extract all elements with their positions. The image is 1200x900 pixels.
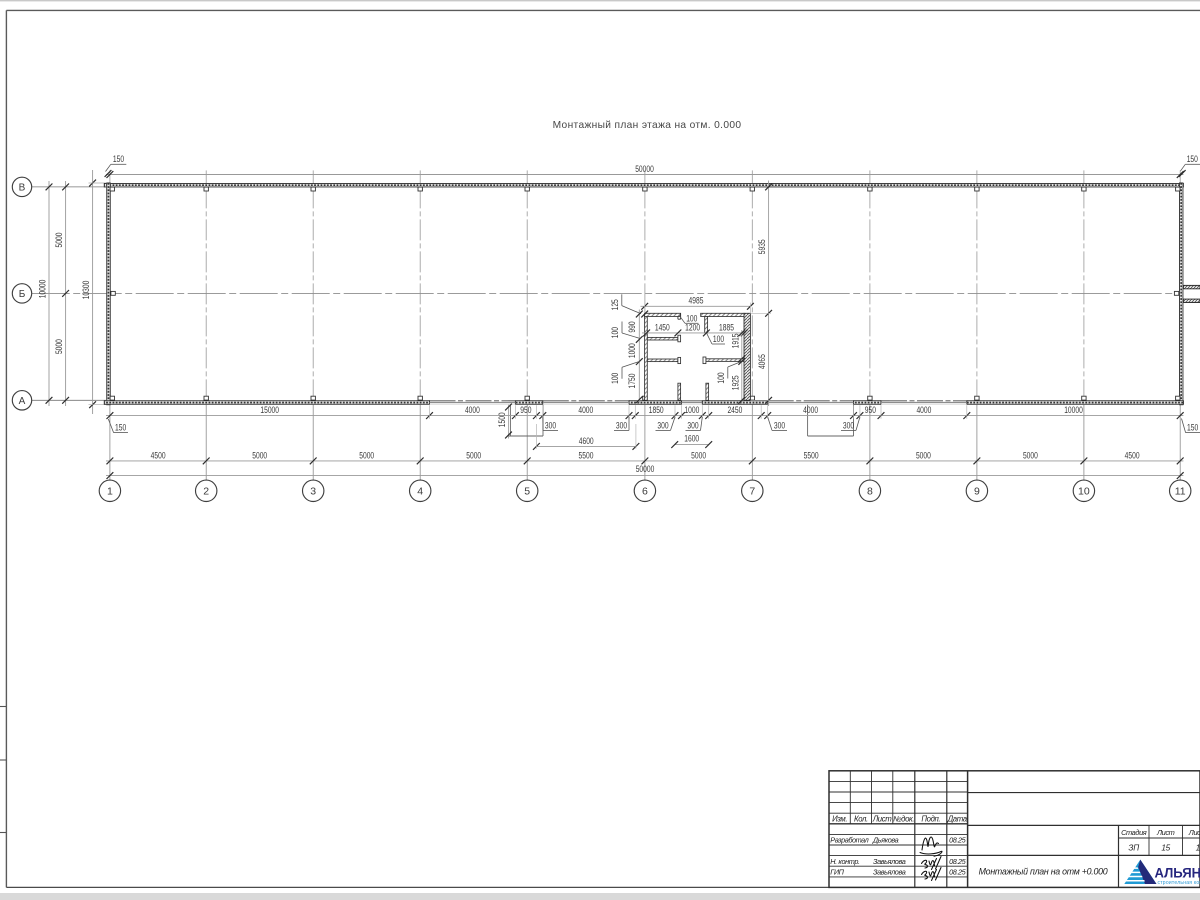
- svg-text:5000: 5000: [1023, 450, 1038, 460]
- svg-text:5000: 5000: [252, 450, 267, 460]
- svg-text:Лист: Лист: [872, 814, 892, 823]
- svg-text:08.25: 08.25: [949, 836, 967, 845]
- svg-text:7: 7: [749, 486, 755, 498]
- svg-text:Подп.: Подп.: [921, 814, 940, 823]
- svg-text:300: 300: [545, 420, 556, 430]
- svg-text:4: 4: [417, 486, 423, 498]
- svg-text:строительная компания: строительная компания: [1158, 880, 1200, 886]
- svg-text:4065: 4065: [757, 354, 767, 369]
- svg-text:Разработал: Разработал: [830, 836, 868, 845]
- svg-text:9: 9: [974, 486, 980, 498]
- svg-text:5935: 5935: [757, 239, 767, 254]
- svg-text:08.25: 08.25: [949, 857, 967, 866]
- svg-text:Кол.: Кол.: [854, 814, 868, 823]
- svg-text:300: 300: [616, 420, 627, 430]
- svg-text:4985: 4985: [689, 296, 704, 306]
- svg-text:1450: 1450: [655, 322, 670, 332]
- svg-text:Изм.: Изм.: [832, 814, 847, 823]
- svg-text:4000: 4000: [916, 405, 931, 415]
- svg-text:1000: 1000: [627, 343, 637, 358]
- svg-text:150: 150: [1187, 154, 1198, 164]
- svg-text:15: 15: [1161, 844, 1170, 853]
- svg-text:А: А: [19, 396, 26, 407]
- svg-text:4500: 4500: [151, 450, 166, 460]
- svg-text:2450: 2450: [727, 405, 742, 415]
- svg-text:50000: 50000: [635, 164, 654, 174]
- svg-text:Лист: Лист: [1188, 828, 1200, 837]
- svg-text:990: 990: [627, 321, 637, 332]
- svg-text:Монтажный план этажа на отм. 0: Монтажный план этажа на отм. 0.000: [553, 120, 742, 131]
- svg-text:6: 6: [642, 486, 648, 498]
- svg-text:300: 300: [687, 420, 698, 430]
- svg-text:Дьякова: Дьякова: [872, 836, 899, 845]
- svg-text:5: 5: [524, 486, 530, 498]
- svg-text:2: 2: [203, 486, 209, 498]
- svg-text:10000: 10000: [38, 280, 48, 299]
- svg-text:1200: 1200: [685, 322, 700, 332]
- svg-text:5000: 5000: [691, 450, 706, 460]
- svg-text:4000: 4000: [465, 405, 480, 415]
- svg-text:08.25: 08.25: [949, 867, 967, 876]
- svg-text:300: 300: [657, 420, 668, 430]
- svg-text:ГИП: ГИП: [830, 867, 844, 876]
- svg-text:150: 150: [115, 423, 126, 433]
- svg-text:15000: 15000: [260, 405, 279, 415]
- svg-text:1925: 1925: [730, 375, 740, 390]
- svg-text:1: 1: [1196, 844, 1200, 853]
- svg-text:Завьялова: Завьялова: [873, 857, 906, 866]
- svg-text:300: 300: [774, 420, 785, 430]
- svg-text:100: 100: [713, 334, 724, 344]
- svg-text:Лист: Лист: [1156, 828, 1175, 837]
- svg-text:150: 150: [113, 154, 124, 164]
- svg-text:50000: 50000: [636, 464, 655, 474]
- svg-text:5000: 5000: [466, 450, 481, 460]
- svg-text:300: 300: [843, 420, 854, 430]
- svg-text:Монтажный план на отм +0.000: Монтажный план на отм +0.000: [979, 867, 1108, 877]
- svg-text:В: В: [19, 183, 26, 194]
- svg-text:3: 3: [310, 486, 316, 498]
- svg-text:100: 100: [716, 372, 726, 383]
- svg-text:10000: 10000: [1064, 405, 1083, 415]
- svg-text:Дата: Дата: [947, 814, 968, 823]
- svg-text:5000: 5000: [359, 450, 374, 460]
- svg-text:4000: 4000: [578, 405, 593, 415]
- svg-text:10: 10: [1078, 486, 1090, 498]
- svg-text:100: 100: [610, 327, 620, 338]
- svg-text:1: 1: [107, 486, 113, 498]
- svg-text:1500: 1500: [497, 412, 507, 427]
- svg-text:150: 150: [1187, 423, 1198, 433]
- svg-text:1750: 1750: [627, 373, 637, 388]
- svg-text:5000: 5000: [54, 339, 64, 354]
- svg-text:4600: 4600: [579, 436, 594, 446]
- svg-text:100: 100: [686, 313, 697, 323]
- svg-text:1915: 1915: [730, 333, 740, 348]
- svg-text:5000: 5000: [54, 232, 64, 247]
- svg-text:Стадия: Стадия: [1121, 828, 1147, 837]
- svg-text:Н. контр.: Н. контр.: [830, 857, 860, 866]
- svg-text:1600: 1600: [684, 434, 699, 444]
- svg-text:8: 8: [867, 486, 873, 498]
- svg-text:100: 100: [610, 373, 620, 384]
- svg-text:950: 950: [520, 405, 531, 415]
- svg-text:5000: 5000: [916, 450, 931, 460]
- svg-text:1000: 1000: [684, 405, 699, 415]
- svg-text:1850: 1850: [649, 405, 664, 415]
- svg-text:10300: 10300: [81, 281, 91, 300]
- svg-text:Завьялова: Завьялова: [873, 867, 906, 876]
- svg-text:1885: 1885: [719, 322, 734, 332]
- svg-text:ЗП: ЗП: [1128, 844, 1139, 853]
- svg-text:4500: 4500: [1125, 450, 1140, 460]
- svg-text:4000: 4000: [803, 405, 818, 415]
- svg-text:11: 11: [1175, 486, 1186, 498]
- svg-text:№док.: №док.: [893, 814, 914, 823]
- svg-text:125: 125: [610, 299, 620, 310]
- svg-text:950: 950: [865, 405, 876, 415]
- svg-text:Б: Б: [19, 289, 26, 300]
- svg-text:5500: 5500: [804, 450, 819, 460]
- svg-text:5500: 5500: [579, 450, 594, 460]
